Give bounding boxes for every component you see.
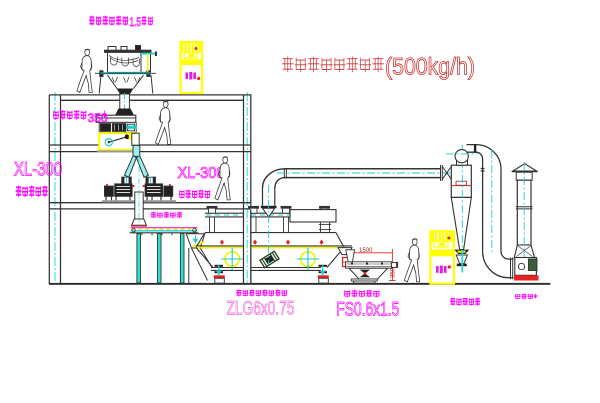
svg-text:(500kg/h): (500kg/h) (385, 54, 475, 81)
svg-text:ZLG6x0.75: ZLG6x0.75 (227, 299, 295, 320)
svg-text:XL-300: XL-300 (14, 160, 62, 181)
svg-text:350: 350 (391, 267, 397, 278)
svg-text:1.5: 1.5 (130, 15, 142, 29)
svg-text:XL-300: XL-300 (178, 165, 225, 182)
svg-text:FS0.6x1.5: FS0.6x1.5 (336, 299, 399, 321)
svg-text:1500: 1500 (359, 248, 373, 254)
